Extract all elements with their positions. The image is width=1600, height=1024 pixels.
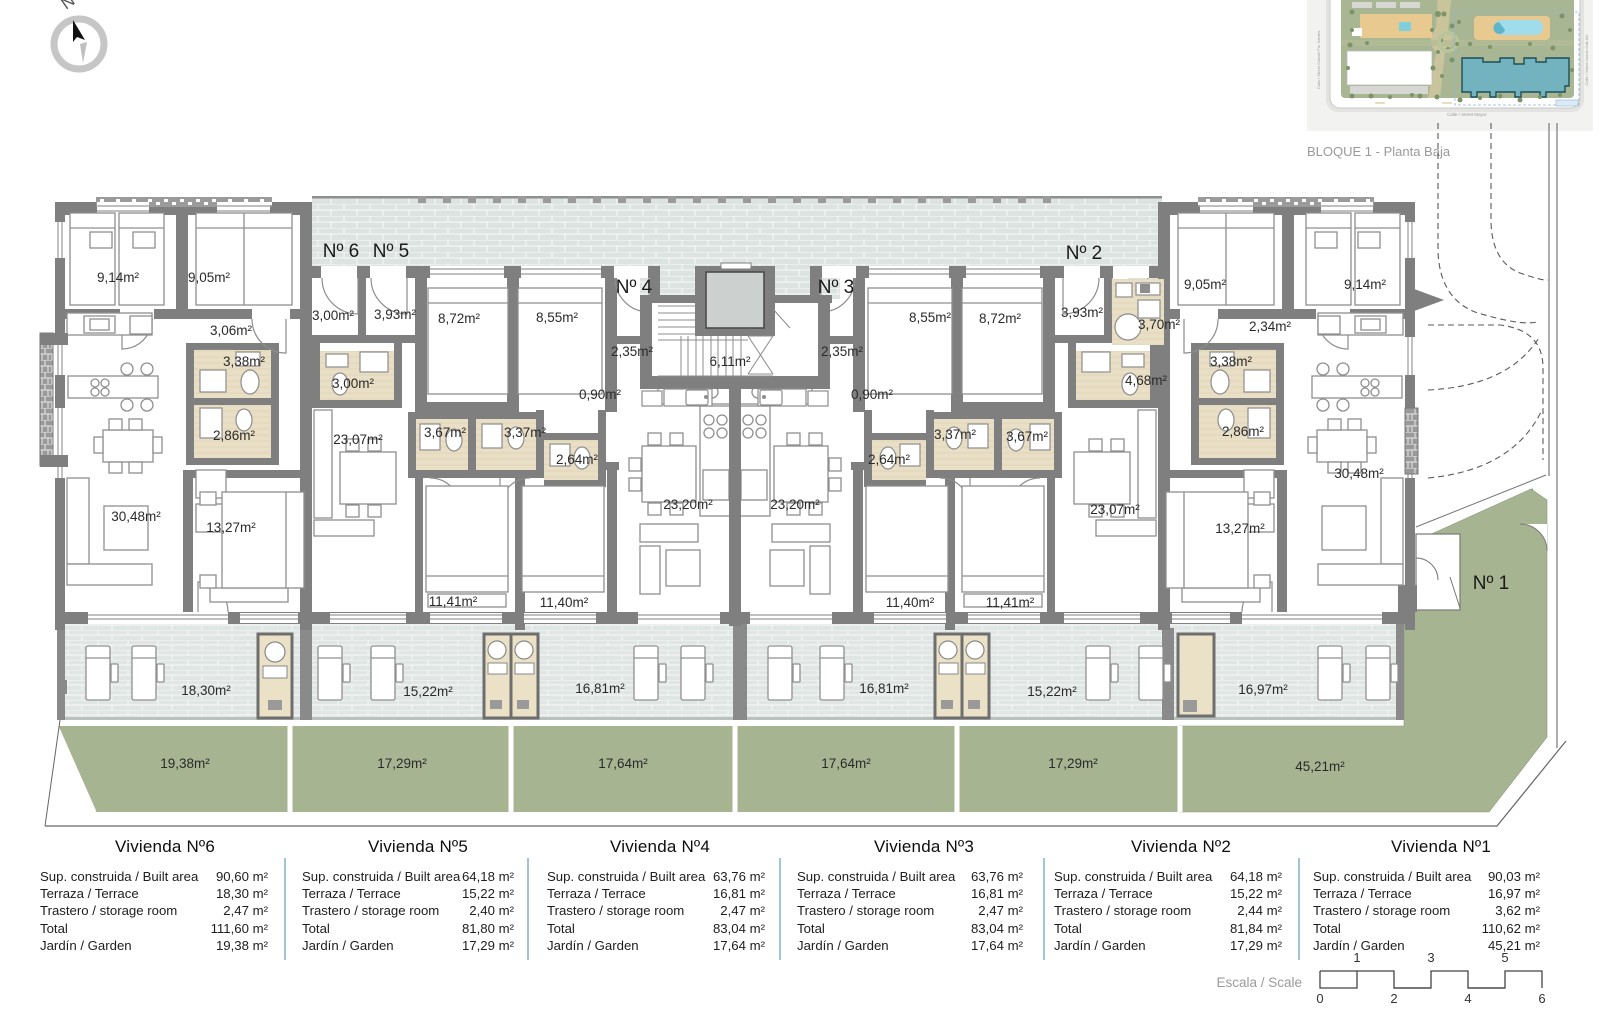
svg-text:xxxxx: xxxxx [1442,101,1452,105]
svg-text:17,64m²: 17,64m² [821,756,871,771]
svg-text:Nº 3: Nº 3 [818,277,855,298]
svg-text:16,81m²: 16,81m² [859,681,909,696]
svg-text:2,35m²: 2,35m² [821,344,864,359]
svg-text:Calle / Street Narcis Gde Alb: Calle / Street Narcis Gde Alb [1584,34,1589,86]
svg-text:Calle / Street Mayor: Calle / Street Mayor [1447,112,1487,117]
svg-text:9,14m²: 9,14m² [97,270,140,285]
svg-text:Calle / Street Gabriel Pro Nan: Calle / Street Gabriel Pro Nantes [1316,31,1321,89]
svg-text:23,20m²: 23,20m² [770,497,820,512]
svg-text:17,64m²: 17,64m² [598,756,648,771]
svg-text:23,20m²: 23,20m² [663,497,713,512]
svg-text:8,55m²: 8,55m² [909,310,952,325]
svg-text:0,90m²: 0,90m² [851,387,894,402]
svg-text:2,86m²: 2,86m² [1222,424,1265,439]
svg-text:0,90m²: 0,90m² [579,387,622,402]
svg-text:0: 0 [1316,991,1323,1006]
svg-text:3,06m²: 3,06m² [210,323,253,338]
svg-text:8,55m²: 8,55m² [536,310,579,325]
svg-text:15,22m²: 15,22m² [1027,684,1077,699]
svg-text:4,68m²: 4,68m² [1125,373,1168,388]
svg-text:23,07m²: 23,07m² [1090,502,1140,517]
svg-text:BLOQUE 1 - Planta Baja: BLOQUE 1 - Planta Baja [1307,144,1451,159]
svg-text:Escala / Scale: Escala / Scale [1216,975,1302,990]
svg-text:23,07m²: 23,07m² [333,432,383,447]
svg-text:3,67m²: 3,67m² [424,425,467,440]
svg-text:11,41m²: 11,41m² [986,595,1035,610]
svg-text:2,86m²: 2,86m² [213,428,256,443]
svg-text:3,93m²: 3,93m² [374,307,417,322]
svg-text:45,21m²: 45,21m² [1295,759,1345,774]
svg-text:3,00m²: 3,00m² [312,308,355,323]
svg-text:16,81m²: 16,81m² [575,681,625,696]
svg-text:11,40m²: 11,40m² [540,595,589,610]
svg-text:8,72m²: 8,72m² [438,311,481,326]
svg-text:3,00m²: 3,00m² [332,376,375,391]
svg-text:3,37m²: 3,37m² [934,427,977,442]
svg-text:30,48m²: 30,48m² [111,509,161,524]
svg-text:11,41m²: 11,41m² [429,594,478,609]
svg-text:18,30m²: 18,30m² [181,683,231,698]
svg-text:16,97m²: 16,97m² [1238,682,1288,697]
svg-text:Nº 6: Nº 6 [323,241,360,262]
svg-text:Nº 1: Nº 1 [1473,573,1510,594]
svg-text:6,11m²: 6,11m² [709,354,751,369]
svg-text:4: 4 [1464,991,1471,1006]
svg-text:9,05m²: 9,05m² [1184,277,1227,292]
svg-text:9,14m²: 9,14m² [1344,277,1387,292]
svg-text:6: 6 [1538,991,1545,1006]
svg-text:17,29m²: 17,29m² [377,756,427,771]
svg-text:13,27m²: 13,27m² [206,520,256,535]
svg-text:9,05m²: 9,05m² [188,270,231,285]
svg-text:2,34m²: 2,34m² [1249,319,1292,334]
svg-text:30,48m²: 30,48m² [1334,466,1384,481]
svg-text:13,27m²: 13,27m² [1215,521,1265,536]
svg-text:2,35m²: 2,35m² [611,344,654,359]
svg-text:2,64m²: 2,64m² [556,452,599,467]
svg-text:2: 2 [1390,991,1397,1006]
svg-text:8,72m²: 8,72m² [979,311,1022,326]
svg-text:19,38m²: 19,38m² [160,756,210,771]
svg-text:xxxxx: xxxxx [1375,101,1385,105]
svg-text:Nº 2: Nº 2 [1066,243,1103,264]
svg-text:3,38m²: 3,38m² [1210,354,1253,369]
svg-text:Nº 5: Nº 5 [373,241,410,262]
svg-text:15,22m²: 15,22m² [403,684,453,699]
svg-text:17,29m²: 17,29m² [1048,756,1098,771]
svg-text:3,38m²: 3,38m² [223,354,266,369]
svg-text:3,93m²: 3,93m² [1061,305,1104,320]
svg-text:2,64m²: 2,64m² [868,452,911,467]
svg-text:3,37m²: 3,37m² [504,425,547,440]
svg-text:11,40m²: 11,40m² [886,595,935,610]
svg-text:Nº 4: Nº 4 [616,277,653,298]
svg-text:3,67m²: 3,67m² [1006,429,1049,444]
svg-text:3,70m²: 3,70m² [1138,317,1181,332]
